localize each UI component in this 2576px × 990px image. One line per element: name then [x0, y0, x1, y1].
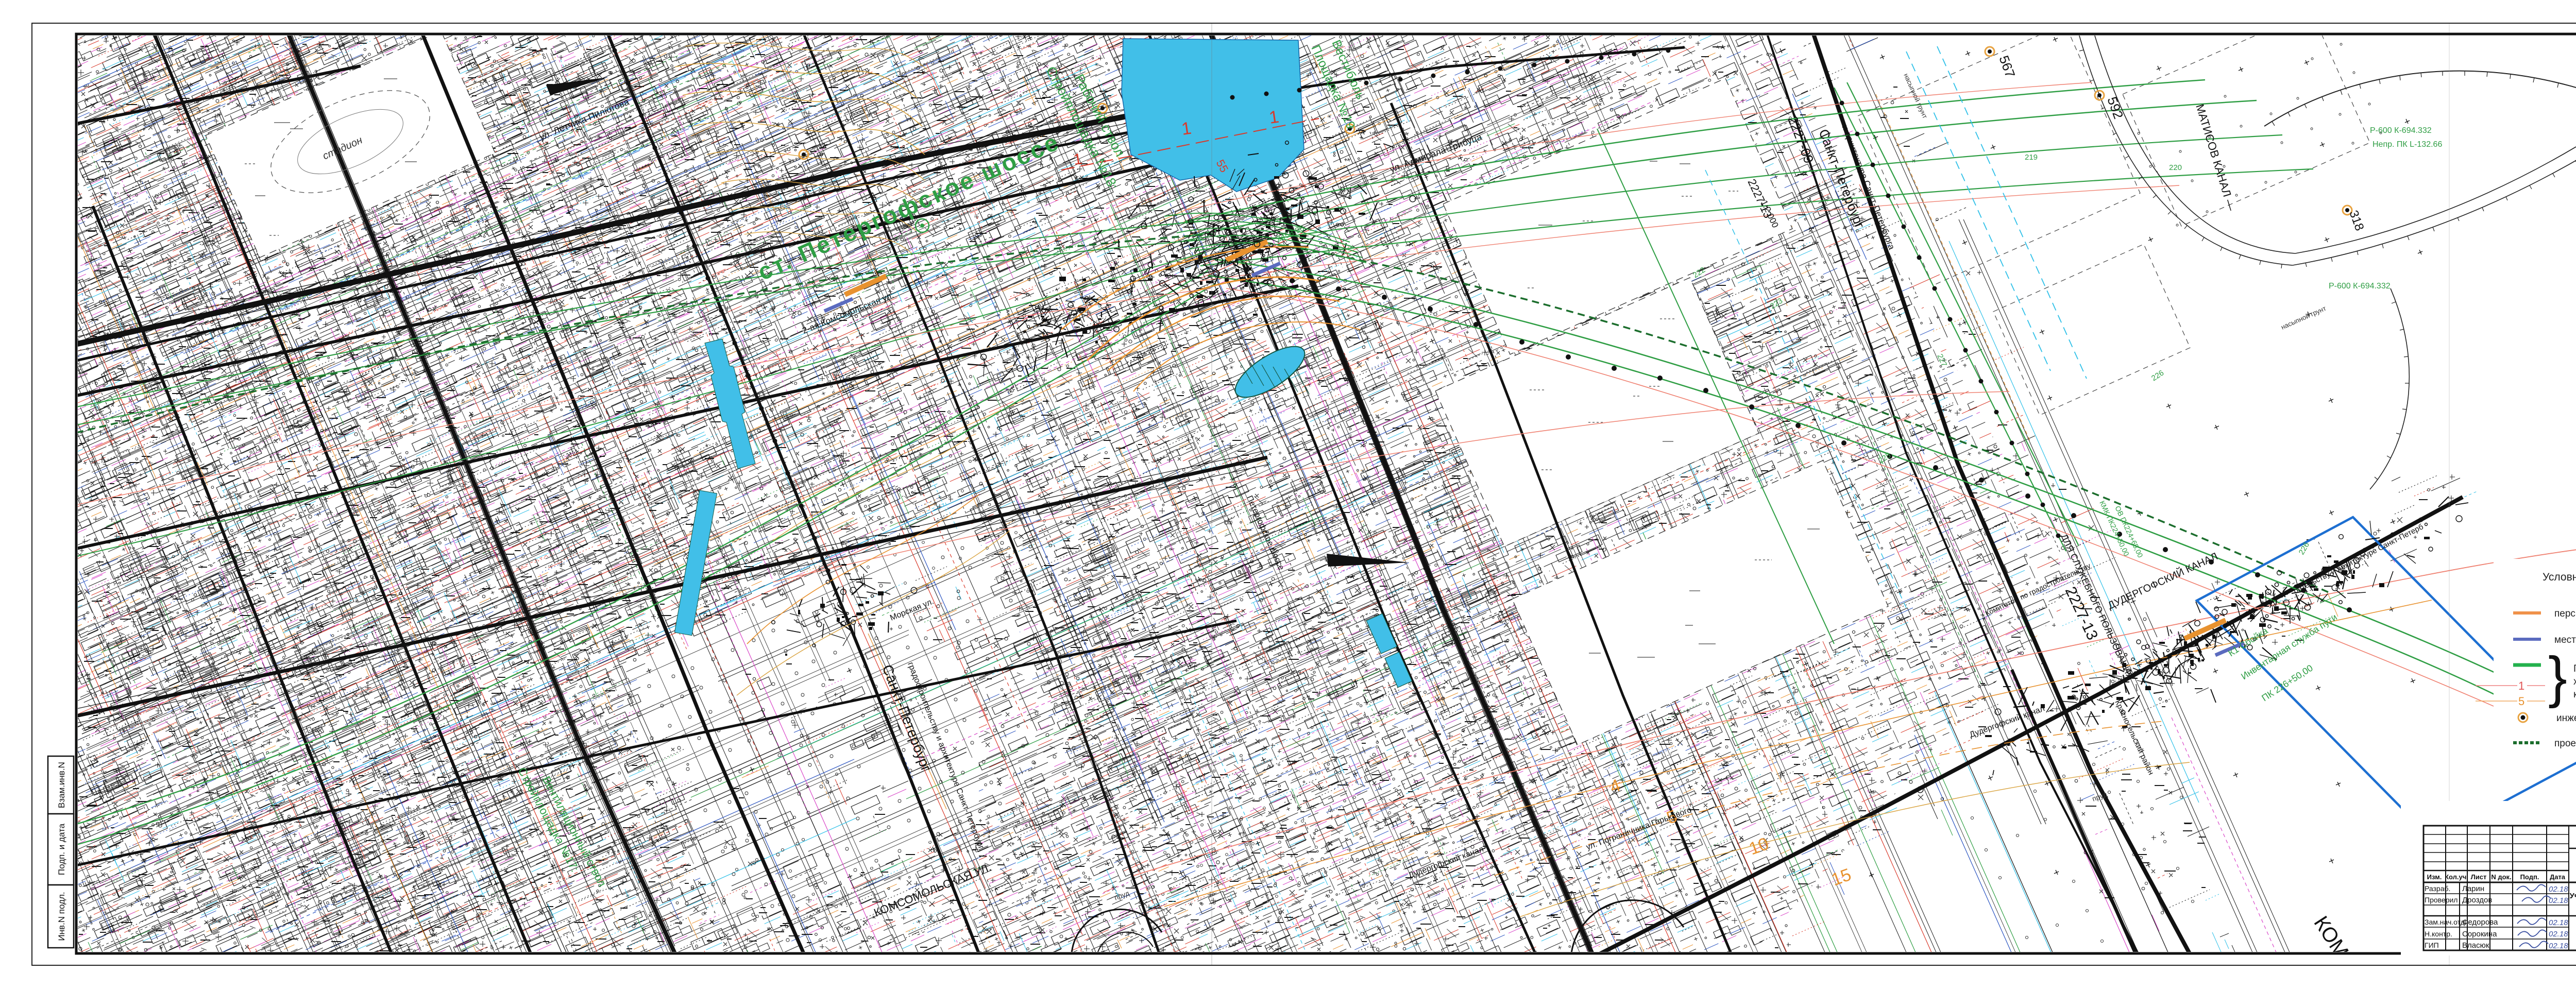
- svg-text:Р-600 К-694.332: Р-600 К-694.332: [2370, 126, 2432, 135]
- svg-text:219: 219: [2025, 153, 2038, 162]
- svg-text:N док.: N док.: [2491, 873, 2511, 881]
- svg-text:Дроздов: Дроздов: [2462, 896, 2492, 904]
- svg-text:}: }: [2548, 645, 2567, 709]
- svg-text:1: 1: [2518, 679, 2524, 692]
- svg-text:220: 220: [2169, 163, 2182, 172]
- svg-text:Разраб.: Разраб.: [2425, 884, 2450, 893]
- svg-text:Инв.N подл.: Инв.N подл.: [57, 892, 66, 941]
- svg-text:Взам.инв.N: Взам.инв.N: [57, 762, 66, 808]
- svg-text:ходов и щитовой проходки (и со: ходов и щитовой проходки (и сооружения с…: [2573, 676, 2576, 687]
- svg-text:инженерно геологическая скважи: инженерно геологическая скважина: [2556, 713, 2576, 724]
- svg-text:Дата: Дата: [2550, 873, 2566, 881]
- svg-text:02.18: 02.18: [2549, 896, 2568, 905]
- svg-text:Проверил: Проверил: [2425, 896, 2458, 904]
- svg-text:перспективные станции метро: перспективные станции метро: [2554, 608, 2576, 619]
- svg-text:Подп. и дата: Подп. и дата: [57, 823, 66, 875]
- svg-text:места размещения вестибюлей: места размещения вестибюлей: [2554, 635, 2576, 645]
- svg-text:проектируемая линия метрополит: проектируемая линия метрополитена: [2554, 738, 2576, 749]
- svg-text:5: 5: [2518, 695, 2524, 708]
- svg-text:02.18: 02.18: [2549, 942, 2568, 950]
- svg-text:Кол.уч.: Кол.уч.: [2445, 873, 2468, 881]
- svg-text:Сорокина: Сорокина: [2462, 930, 2497, 938]
- svg-text:Ларин: Ларин: [2462, 884, 2484, 893]
- svg-text:02.18: 02.18: [2549, 918, 2568, 927]
- svg-text:02.18: 02.18: [2549, 885, 2568, 894]
- svg-text:Н.контр.: Н.контр.: [2425, 930, 2452, 938]
- svg-text:02.18: 02.18: [2549, 930, 2568, 938]
- svg-text:Р-600 К-694.332: Р-600 К-694.332: [2329, 282, 2391, 291]
- svg-text:Изм.: Изм.: [2427, 873, 2442, 881]
- svg-text:Зам.нач.отд.: Зам.нач.отд.: [2425, 918, 2467, 926]
- svg-text:Непр. ПК L-132.66: Непр. ПК L-132.66: [2372, 140, 2442, 149]
- svg-text:ГИП: ГИП: [2425, 941, 2439, 949]
- svg-text:Условные обозначения:: Условные обозначения:: [2543, 571, 2576, 583]
- svg-text:Лист: Лист: [2471, 873, 2487, 881]
- svg-text:Подп.: Подп.: [2520, 873, 2539, 881]
- svg-text:комплекса): комплекса): [2573, 689, 2576, 700]
- svg-text:Участок от ПК 204+00,00 до ПК: Участок от ПК 204+00,00 до ПК 227+00,00: [2570, 892, 2576, 900]
- svg-text:Власюк: Власюк: [2462, 941, 2489, 950]
- svg-text:Федорова: Федорова: [2462, 918, 2498, 927]
- svg-text:Граница мульды оседания от соо: Граница мульды оседания от сооружения на…: [2573, 663, 2576, 674]
